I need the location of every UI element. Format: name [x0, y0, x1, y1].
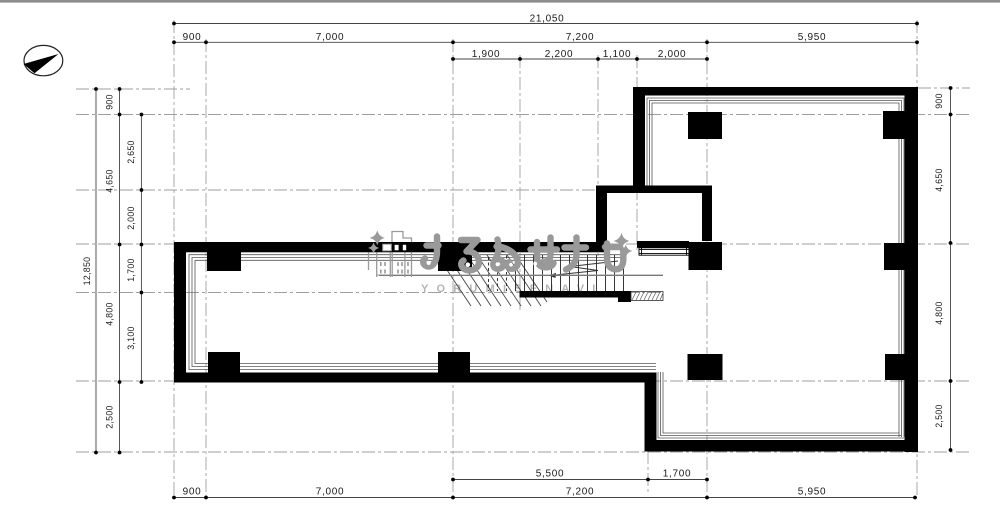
svg-text:7,200: 7,200 — [566, 487, 595, 498]
svg-text:2,000: 2,000 — [126, 206, 136, 230]
svg-text:1,700: 1,700 — [663, 469, 692, 480]
svg-text:5,950: 5,950 — [798, 487, 827, 498]
svg-text:12,850: 12,850 — [82, 257, 92, 286]
svg-text:4,800: 4,800 — [934, 301, 944, 325]
svg-text:21,050: 21,050 — [530, 14, 565, 25]
svg-text:900: 900 — [934, 93, 944, 109]
svg-text:2,650: 2,650 — [126, 140, 136, 164]
svg-text:7,000: 7,000 — [316, 32, 345, 43]
svg-text:1,900: 1,900 — [472, 49, 501, 60]
svg-text:3,100: 3,100 — [126, 326, 136, 350]
svg-text:900: 900 — [183, 487, 202, 498]
svg-text:7,000: 7,000 — [316, 487, 345, 498]
svg-text:2,500: 2,500 — [934, 404, 944, 428]
svg-text:2,500: 2,500 — [105, 405, 115, 429]
svg-text:4,650: 4,650 — [105, 169, 115, 193]
svg-text:900: 900 — [183, 32, 202, 43]
svg-text:5,950: 5,950 — [798, 32, 827, 43]
svg-text:7,200: 7,200 — [566, 32, 595, 43]
svg-text:4,800: 4,800 — [105, 302, 115, 326]
svg-text:4,650: 4,650 — [934, 168, 944, 192]
svg-text:1,700: 1,700 — [126, 258, 136, 282]
svg-text:1,100: 1,100 — [603, 49, 632, 60]
svg-text:2,200: 2,200 — [545, 49, 574, 60]
svg-text:5,500: 5,500 — [536, 469, 565, 480]
svg-text:900: 900 — [105, 94, 115, 110]
svg-text:2,000: 2,000 — [658, 49, 687, 60]
